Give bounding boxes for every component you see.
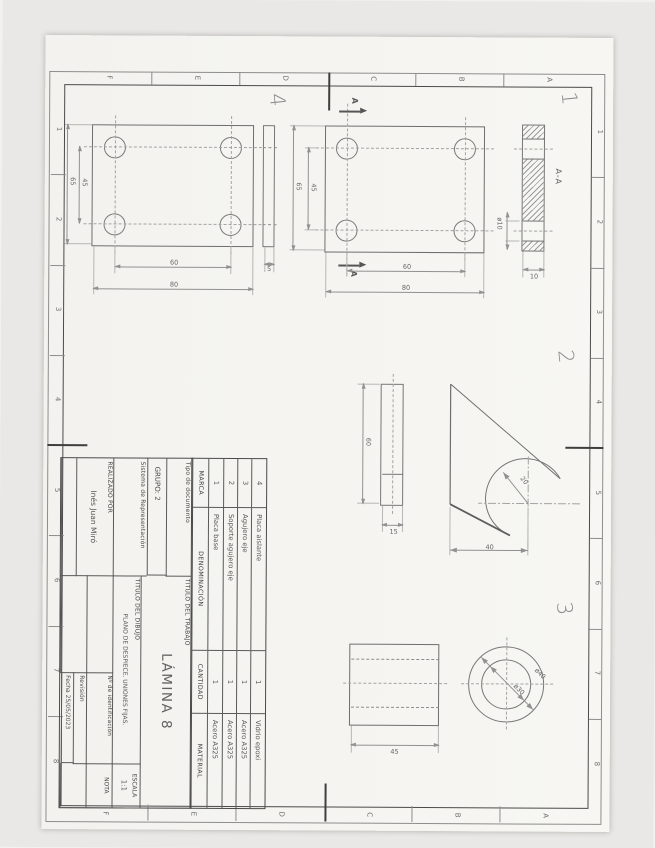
grid-tick	[591, 176, 604, 177]
cell-grupo: GRUPO: 2	[146, 458, 167, 575]
cell-nota: NOTA	[85, 763, 112, 808]
grid-number: 5	[53, 482, 60, 498]
grid-tick	[503, 73, 504, 86]
extension-line	[401, 505, 402, 531]
section-title: A-A	[553, 158, 562, 194]
dimension-label: 80	[169, 281, 177, 288]
section-hatch	[522, 158, 543, 220]
parts-table-cell-material: Acero A325	[206, 713, 221, 807]
dimension-label: ø10	[496, 217, 503, 229]
extension-line	[464, 253, 465, 277]
grid-number: 3	[54, 301, 61, 317]
cell-titulo-dibujo: TITULO DEL DIBUJO PLANO DE DESPIECE. UNI…	[111, 575, 141, 764]
grupo-label: GRUPO:	[153, 466, 161, 493]
section-hatch	[523, 125, 544, 138]
grid-tick	[499, 806, 500, 822]
dimension-label: 45	[310, 183, 317, 191]
cell-revision: Revisión	[72, 672, 86, 764]
cell-blank-mid	[86, 575, 114, 673]
hole-wall-line	[522, 220, 543, 221]
grid-letter: D	[281, 70, 288, 86]
hidden-line	[351, 706, 439, 707]
part3-diameter-dims	[460, 641, 550, 729]
grid-number: 7	[52, 662, 59, 678]
parts-table-cell-material: Acero A325	[221, 713, 235, 807]
parts-table-cell-marca: 1	[208, 458, 223, 507]
grid-number: 2	[54, 211, 61, 227]
dimension-line	[350, 744, 438, 745]
parts-table-cell-material: Vidrio epoxi	[249, 714, 264, 808]
parts-table-cell-marca: 3	[237, 459, 251, 508]
cell-realizado-por: REALIZADO POR Inés Juan Miró	[75, 458, 114, 576]
section-arrow-head	[360, 107, 367, 113]
sistema-label: Sistema de Representación	[138, 461, 144, 548]
dimension-line	[362, 383, 364, 503]
part1-section-strip	[521, 124, 545, 251]
dimension-label: 65	[69, 177, 76, 185]
cell-blank-mid2	[60, 575, 88, 673]
cell-tipo-documento: Tipo de documento	[165, 458, 192, 576]
titulo-trabajo-label: TITULO DEL TRABAJO	[183, 578, 189, 645]
grid-tick	[590, 357, 603, 358]
parts-table-cell-marca: 4	[251, 459, 266, 508]
dimension-label: 45	[390, 748, 398, 755]
grid-tick	[589, 628, 602, 629]
part2-main-view	[434, 361, 585, 577]
grid-number: 8	[592, 755, 599, 771]
dimension-line	[292, 125, 294, 250]
cell-fecha: Fecha 25/05/2023	[60, 672, 73, 763]
cell-blank-left	[60, 458, 77, 576]
parts-table-cell-material: Acero A325	[235, 714, 249, 808]
part3-number-label: 3	[552, 600, 574, 615]
extension-line	[357, 502, 379, 503]
parts-table-cell-cantidad: 1	[206, 650, 221, 713]
dimension-label: 10	[529, 273, 537, 280]
centerline	[513, 230, 552, 231]
titulo-dibujo-label: TITULO DEL DIBUJO	[133, 578, 139, 640]
titulo-dibujo-value: PLANO DE DESPIECE. UNIONES FIJAS.	[120, 575, 128, 763]
grid-tick	[591, 267, 604, 268]
realizado-value: Inés Juan Miró	[88, 458, 98, 575]
dimension-label: 60	[169, 259, 177, 266]
extension-line	[381, 505, 382, 531]
tipo-documento-label: Tipo de documento	[183, 461, 189, 522]
extension-line	[114, 246, 115, 273]
hidden-line	[351, 658, 439, 659]
centerline	[464, 117, 466, 260]
grid-letter: F	[105, 69, 112, 85]
parts-table-header-cantidad: CANTIDAD	[190, 650, 206, 713]
revision-label: Revisión	[78, 675, 84, 702]
dimension-line	[523, 269, 544, 270]
dimension-label: 65	[295, 182, 302, 190]
centering-mark-left	[328, 72, 330, 110]
dimension-label: 45	[81, 178, 88, 186]
section-cut-line	[346, 103, 348, 275]
hidden-line	[262, 224, 276, 225]
hole-wall-line	[522, 158, 543, 159]
parts-table-cell-denominacion: Placa aislante	[250, 508, 266, 651]
section-arrow-line	[338, 264, 359, 266]
extension-line	[264, 247, 265, 272]
parts-table-header-denominacion: DENOMINACIÓN	[191, 507, 208, 650]
parts-table-cell-denominacion: Placa base	[207, 507, 223, 650]
parts-table: 4 Placa aislante 1 Vidrio epoxi 3 Agujer…	[189, 457, 267, 808]
parts-table-header-material: MATERIAL	[190, 713, 206, 807]
escala-label: ESCALA	[130, 763, 137, 807]
grid-letter: B	[457, 71, 464, 87]
grid-letter: A	[545, 71, 552, 87]
section-letter: A	[350, 97, 358, 103]
cell-num-identificacion: Nº de identificación	[85, 672, 112, 764]
parts-table-cell-denominacion: Agujero eje	[236, 508, 251, 651]
parts-table-cell-cantidad: 1	[221, 650, 235, 713]
dimension-label: 60	[402, 263, 410, 270]
part4-side-view	[262, 125, 275, 247]
section-arrow-line	[339, 110, 360, 112]
extension-line	[357, 383, 379, 384]
dimension-line	[307, 147, 308, 229]
grid-tick	[151, 71, 152, 84]
parts-table-cell-denominacion: Soporte agujero eje	[222, 507, 237, 650]
escala-value: 1:1	[119, 763, 127, 807]
grid-letter: E	[193, 69, 200, 85]
centerline	[343, 682, 447, 684]
centerline	[230, 115, 232, 253]
grid-number: 1	[55, 121, 62, 137]
centerline	[513, 148, 552, 149]
fecha-label: Fecha	[64, 675, 71, 693]
grid-number: 4	[594, 393, 601, 409]
grid-number: 3	[595, 303, 602, 319]
part4-number-label: 4	[265, 92, 287, 107]
parts-table-header-marca: MARCA	[192, 458, 208, 507]
extension-line	[273, 247, 274, 272]
grid-tick	[415, 72, 416, 85]
cell-titulo-trabajo: TITULO DEL TRABAJO LÁMINA 8	[139, 575, 191, 808]
centering-mark-bottom	[47, 444, 87, 446]
num-id-label: Nº de identificación	[105, 675, 111, 736]
grid-number: 2	[595, 213, 602, 229]
realizado-label: REALIZADO POR	[106, 461, 112, 513]
dimension-label: 60	[364, 437, 371, 445]
hole-wall-line	[522, 240, 543, 241]
extension-line	[230, 246, 231, 273]
grid-number: 6	[593, 574, 600, 590]
cell-escala: ESCALA 1:1	[111, 763, 140, 808]
dimension-line	[381, 524, 402, 525]
grid-number: 6	[52, 572, 59, 588]
section-arrow-head	[359, 261, 366, 267]
dimension-line	[78, 146, 79, 223]
parts-table-cell-cantidad: 1	[235, 651, 249, 714]
extension-line	[350, 725, 351, 752]
grid-number: 1	[595, 123, 602, 139]
extension-line	[522, 251, 523, 277]
dimension-label: 40	[485, 544, 493, 551]
part1-number-label: 1	[557, 90, 579, 105]
grupo-value: 2	[153, 496, 161, 501]
grid-tick	[50, 265, 65, 266]
grid-letter: C	[369, 70, 376, 86]
scanner-bed: 1 2 3 4 5 6 7 8 1 2 3 4 5 6 7 8 A B C D …	[0, 0, 655, 848]
grid-number: 4	[53, 391, 60, 407]
grid-tick	[588, 718, 601, 719]
grid-tick	[411, 805, 412, 821]
titulo-trabajo-value: LÁMINA 8	[157, 575, 174, 807]
grid-letter: C	[365, 806, 372, 822]
title-block: Tipo de documento GRUPO: 2 Sistema de Re…	[58, 457, 193, 809]
dimension-line	[66, 124, 68, 244]
hole-wall-line	[522, 138, 543, 139]
dimension-label: 80	[401, 284, 409, 291]
cell-blank-right	[59, 763, 86, 808]
grid-tick	[50, 174, 65, 175]
grid-tick	[589, 537, 602, 538]
extension-line	[346, 252, 347, 276]
centerline	[114, 115, 116, 253]
extension-line	[543, 251, 544, 277]
parts-table-cell-cantidad: 1	[249, 651, 264, 714]
grid-letter: B	[453, 807, 460, 823]
scanned-drawing-screenshot: 1 2 3 4 5 6 7 8 1 2 3 4 5 6 7 8 A B C D …	[0, 0, 655, 848]
nota-label: NOTA	[102, 763, 109, 807]
parts-table-cell-marca: 2	[223, 458, 237, 507]
dimension-label: 5	[266, 265, 270, 272]
grid-letter: A	[541, 807, 548, 823]
part3-cylinder-outline	[348, 643, 438, 725]
dimension-line	[506, 212, 507, 249]
cell-sistema: Sistema de Representación	[112, 458, 147, 576]
centering-mark-right	[324, 783, 326, 821]
extension-line	[437, 726, 438, 753]
grid-letter: D	[277, 806, 284, 822]
grid-number: 7	[593, 664, 600, 680]
grid-tick	[49, 355, 64, 356]
dimension-label: 15	[389, 528, 397, 535]
centerline	[392, 373, 394, 513]
hidden-line	[262, 147, 276, 148]
grid-number: 8	[51, 753, 58, 769]
grid-number: 5	[594, 484, 601, 500]
grid-tick	[239, 72, 240, 85]
fecha-value: 25/05/2023	[64, 694, 71, 729]
